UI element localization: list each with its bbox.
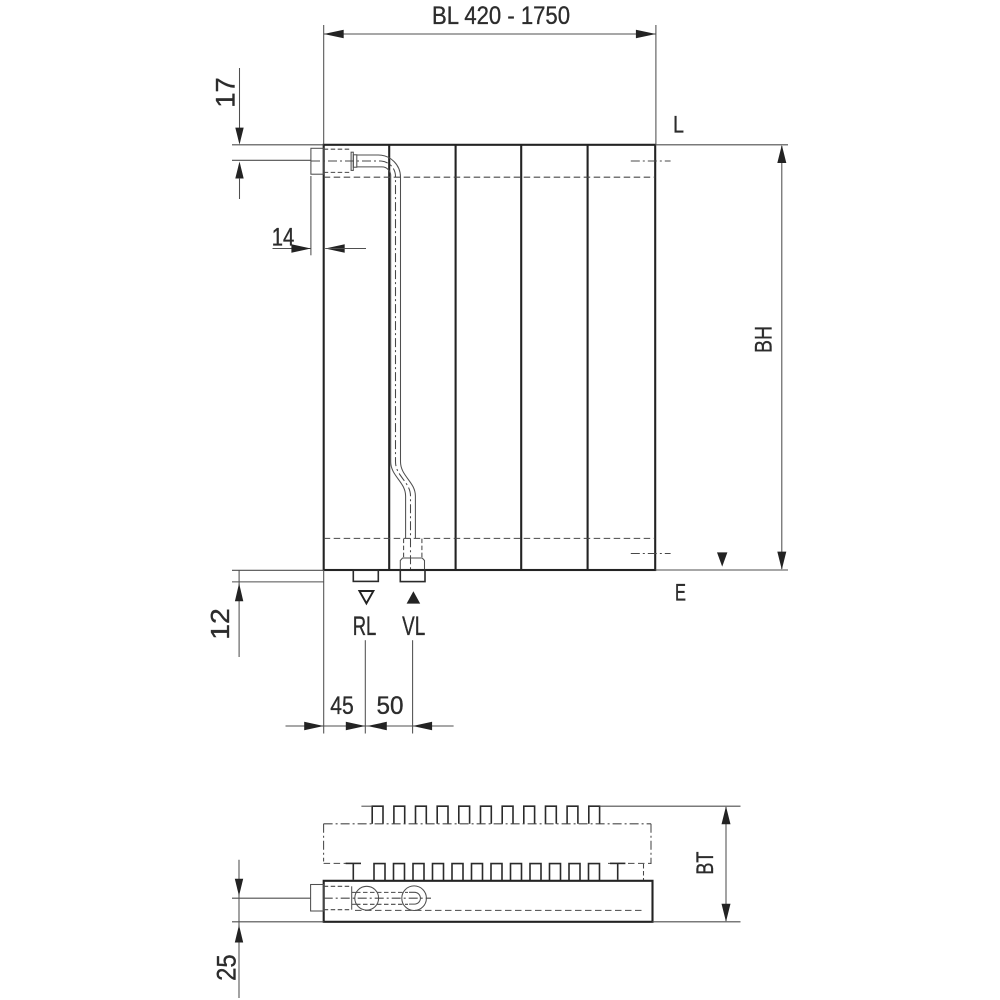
svg-text:25: 25 bbox=[212, 954, 242, 981]
svg-text:BT: BT bbox=[692, 851, 719, 874]
svg-text:12: 12 bbox=[205, 608, 235, 640]
svg-text:17: 17 bbox=[210, 77, 240, 108]
svg-text:BH: BH bbox=[751, 326, 778, 353]
svg-text:VL: VL bbox=[402, 611, 425, 641]
svg-text:45: 45 bbox=[330, 692, 354, 720]
svg-text:L: L bbox=[673, 111, 684, 138]
svg-text:14: 14 bbox=[272, 224, 295, 252]
svg-text:BL 420 - 1750: BL 420 - 1750 bbox=[432, 2, 570, 30]
svg-text:50: 50 bbox=[377, 692, 404, 720]
svg-text:RL: RL bbox=[353, 611, 377, 641]
svg-text:E: E bbox=[675, 579, 686, 606]
